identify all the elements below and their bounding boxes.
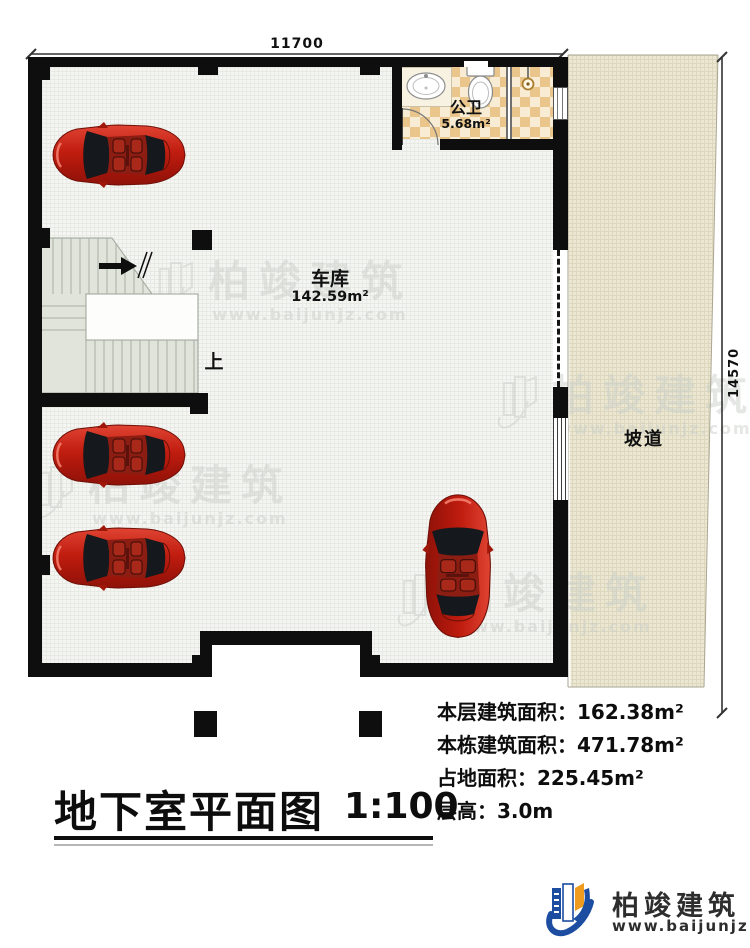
stat-footprint: 占地面积：225.45m²	[437, 762, 684, 795]
column-block	[360, 67, 380, 75]
wall-bathroom-west	[392, 57, 402, 150]
title-underline-thin	[54, 844, 433, 846]
wall-bathroom-south	[440, 139, 553, 150]
stat-floor-area: 本层建筑面积：162.38m²	[437, 696, 684, 729]
wall-bottom-left	[28, 663, 210, 677]
column-block	[42, 555, 50, 575]
column-block	[42, 62, 50, 80]
room-label-ramp: 坡道	[604, 430, 684, 450]
wall-step	[372, 655, 380, 664]
wall-recess-side	[200, 631, 212, 677]
stat-building-area: 本栋建筑面积：471.78m²	[437, 729, 684, 762]
wall-recess-side	[360, 631, 372, 677]
garage-name: 车库	[280, 269, 380, 290]
recess-outside-area	[210, 645, 362, 665]
garage-floor	[42, 67, 553, 663]
page-title: 地下室平面图	[54, 778, 324, 840]
column-marker	[192, 230, 212, 250]
wall-recess-top	[200, 631, 372, 645]
column-block	[198, 67, 218, 75]
wall-bottom-right	[362, 663, 568, 677]
title-underline-thick	[54, 836, 433, 840]
wall-niche	[464, 61, 488, 67]
bathroom-area: 5.68m²	[426, 117, 506, 131]
stat-floor-height: 层高：3.0m	[437, 795, 684, 828]
wall-step	[192, 655, 200, 664]
wall-stair-step	[190, 407, 208, 414]
brand-logo-icon	[549, 883, 591, 933]
floor-plan-page: 柏竣建筑 www.baijunjz.com 柏竣建筑 www.baijunjz.…	[0, 0, 750, 948]
column-marker	[194, 711, 217, 737]
area-statistics: 本层建筑面积：162.38m² 本栋建筑面积：471.78m² 占地面积：225…	[437, 696, 684, 828]
bathroom-partition	[506, 67, 512, 139]
garage-door-shutter	[553, 418, 568, 500]
wall-stair-south	[33, 393, 208, 407]
wall-right-segment	[553, 500, 568, 677]
ramp-surface	[568, 55, 718, 687]
bathroom-name: 公卫	[426, 99, 506, 117]
dimension-top: 11700	[257, 36, 337, 52]
wall-right-segment	[553, 387, 568, 418]
dimension-right: 14570	[727, 348, 742, 398]
garage-opening-dashed	[557, 250, 560, 387]
brand-website: www.baijunjz.com	[612, 917, 750, 935]
column-marker	[359, 711, 382, 737]
column-block	[42, 228, 50, 248]
wall-left	[28, 57, 42, 677]
room-label-garage: 车库 142.59m²	[280, 269, 380, 306]
room-label-bathroom: 公卫 5.68m²	[426, 99, 506, 130]
wall-right-segment	[553, 57, 568, 87]
wall-right-segment	[553, 120, 568, 250]
bathroom-window	[553, 87, 568, 120]
garage-area: 142.59m²	[280, 290, 380, 306]
stair-up-label: 上	[196, 352, 232, 373]
